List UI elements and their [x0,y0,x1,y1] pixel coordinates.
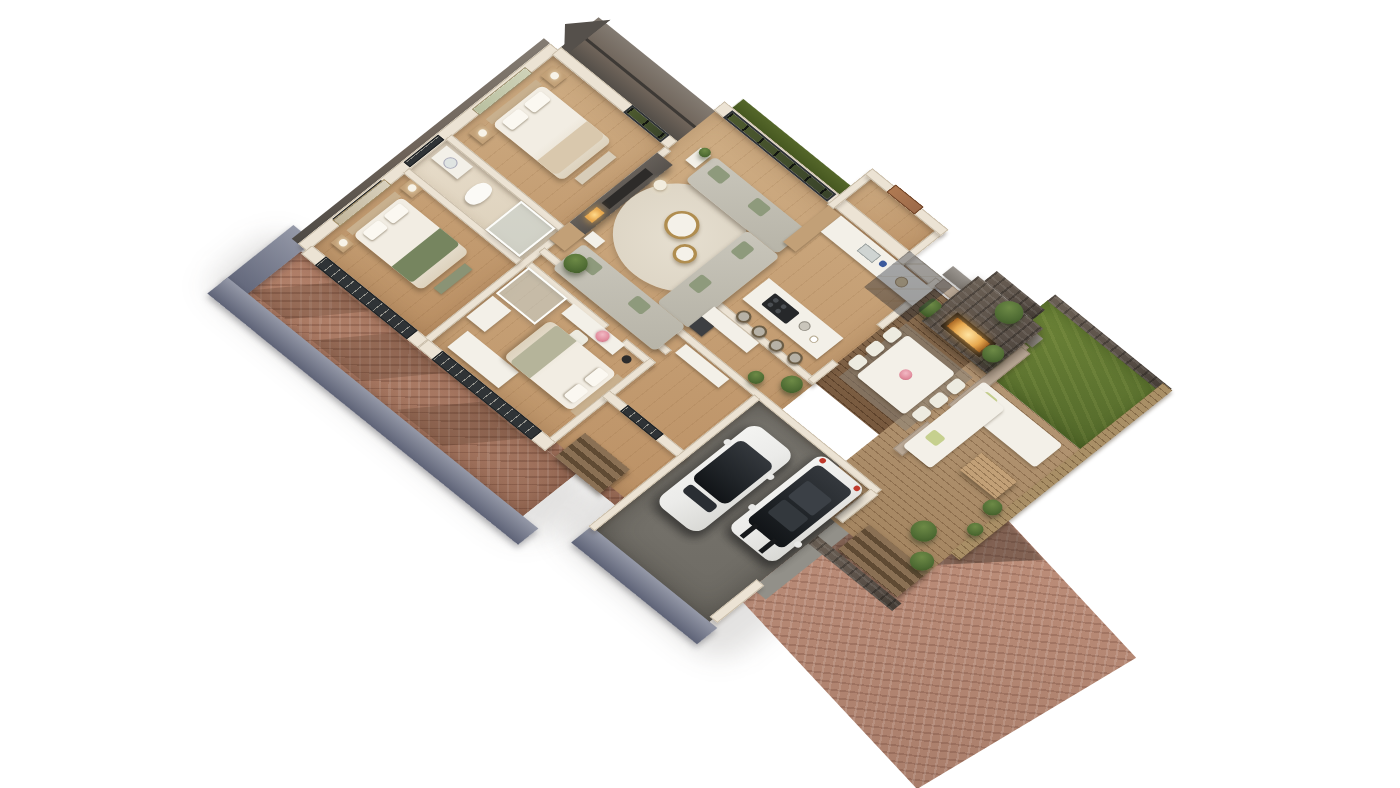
sofa-cushion [730,240,755,260]
bonnet-stripe [740,523,760,539]
kettle [796,319,813,333]
wing-mirror [747,503,758,512]
sink [856,243,881,263]
pillow [383,203,410,224]
coffee-cup [808,334,820,344]
sofa-cushion [747,197,772,217]
lime-cushion [924,429,946,447]
house-plan [253,0,1173,720]
burner [772,297,780,303]
burner [766,302,774,308]
sofa-cushion [706,165,731,185]
bonnet-stripe [758,538,778,554]
floor-plan-render [0,0,1400,788]
gas-hob [761,293,800,324]
rose-centerpiece [896,367,915,382]
burner [774,308,782,314]
sofa-cushion [688,274,713,294]
burner [780,304,788,310]
basin [440,155,460,171]
fruit-bowl [892,275,911,290]
tail-lamp [852,485,861,493]
tail-lamp [818,457,827,465]
sofa-cushion [627,295,652,315]
fireplace-glow [584,207,604,223]
pillow [362,220,389,241]
blue-bottles [877,259,888,268]
